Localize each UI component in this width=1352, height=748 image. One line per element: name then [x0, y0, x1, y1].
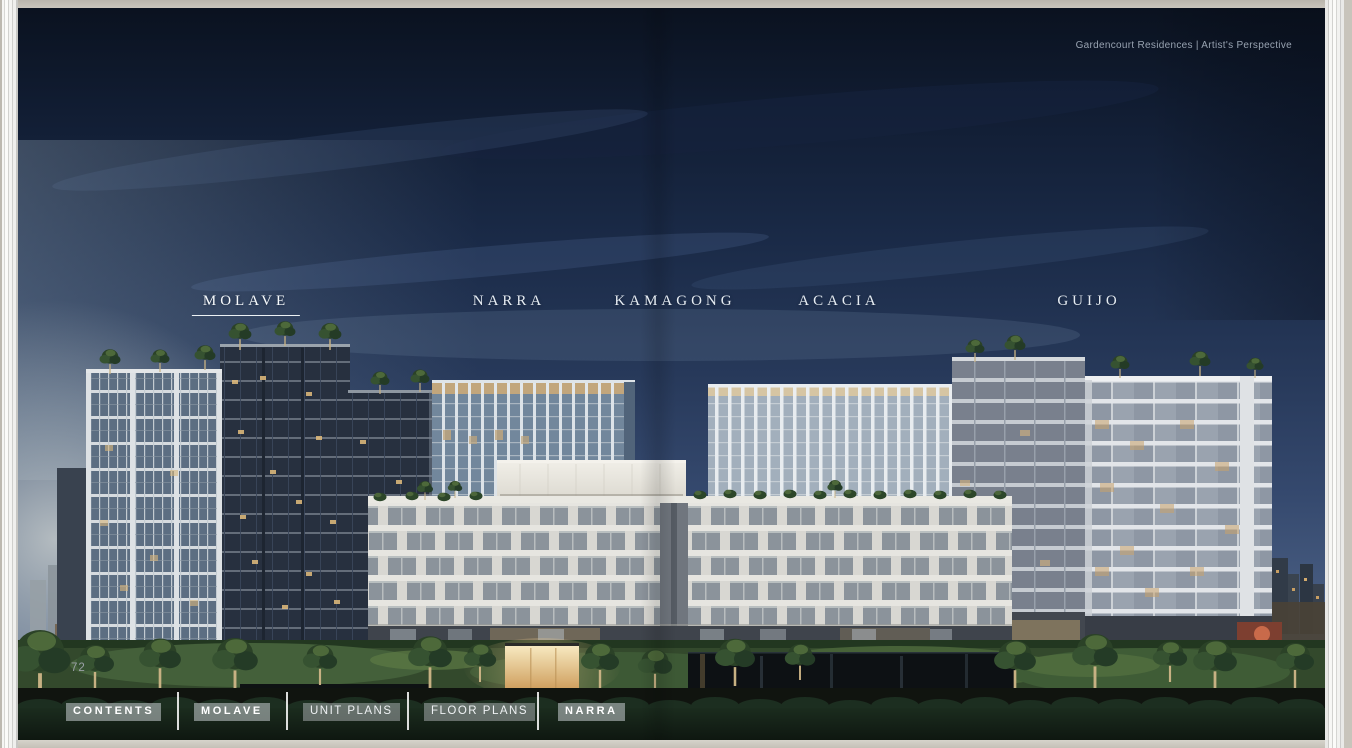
- nav-divider: [407, 692, 409, 730]
- viewer-frame-bottom: [0, 740, 1352, 748]
- page-stack-right[interactable]: [1325, 0, 1352, 748]
- building-label-molave[interactable]: MOLAVE: [192, 293, 300, 316]
- page-number: 72: [71, 662, 86, 674]
- nav-item-floor-plans[interactable]: FLOOR PLANS: [424, 703, 535, 721]
- building-label-narra[interactable]: NARRA: [473, 293, 546, 310]
- nav-divider: [286, 692, 288, 730]
- page-stack-left[interactable]: [0, 0, 18, 748]
- nav-item-narra[interactable]: NARRA: [558, 703, 625, 721]
- nav-item-molave[interactable]: MOLAVE: [194, 703, 270, 721]
- nav-item-unit-plans[interactable]: UNIT PLANS: [303, 703, 400, 721]
- viewer-frame-top: [0, 0, 1352, 8]
- nav-divider: [177, 692, 179, 730]
- nav-divider: [537, 692, 539, 730]
- building-label-acacia[interactable]: ACACIA: [798, 293, 880, 310]
- page-overlay: Gardencourt Residences | Artist's Perspe…: [0, 0, 1352, 748]
- building-label-guijo[interactable]: GUIJO: [1057, 293, 1120, 310]
- building-label-kamagong[interactable]: KAMAGONG: [614, 293, 735, 310]
- nav-item-contents[interactable]: CONTENTS: [66, 703, 161, 721]
- image-caption: Gardencourt Residences | Artist's Perspe…: [1076, 40, 1292, 51]
- flipbook-spread: Gardencourt Residences | Artist's Perspe…: [0, 0, 1352, 748]
